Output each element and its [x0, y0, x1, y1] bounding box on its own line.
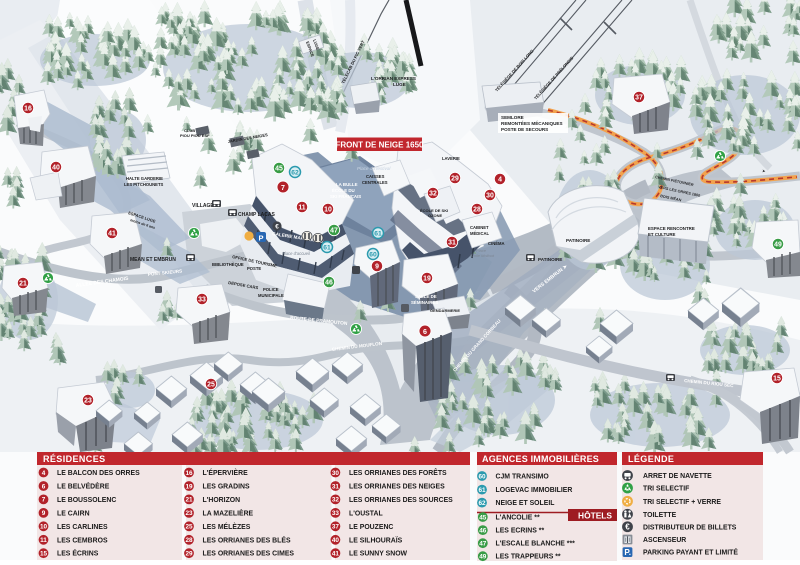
svg-text:PATINOIRE: PATINOIRE [538, 257, 562, 262]
svg-text:L'OUSTAL: L'OUSTAL [349, 510, 383, 517]
svg-text:46: 46 [325, 280, 333, 287]
svg-text:LES ECRINS **: LES ECRINS ** [496, 528, 545, 535]
svg-text:LES ORRIANES DES CIMES: LES ORRIANES DES CIMES [203, 551, 295, 558]
svg-text:16: 16 [24, 106, 32, 113]
svg-text:46: 46 [479, 527, 487, 534]
svg-text:45: 45 [479, 514, 487, 521]
svg-text:7: 7 [42, 497, 46, 504]
svg-text:4: 4 [498, 177, 502, 184]
svg-text:P: P [258, 233, 263, 242]
svg-text:ESPACE RENCONTRE: ESPACE RENCONTRE [648, 226, 695, 231]
svg-text:SEMLORE: SEMLORE [501, 115, 524, 120]
svg-text:LES ORRIANES DES SOURCES: LES ORRIANES DES SOURCES [349, 497, 453, 504]
svg-text:30: 30 [332, 470, 340, 477]
svg-text:MUNICIPALE: MUNICIPALE [258, 293, 284, 298]
svg-text:19: 19 [423, 276, 431, 283]
svg-text:15: 15 [773, 376, 781, 383]
svg-text:33: 33 [198, 297, 206, 304]
svg-text:POSTE DE SECOURS: POSTE DE SECOURS [501, 127, 548, 132]
svg-text:ARRET DE NAVETTE: ARRET DE NAVETTE [643, 473, 712, 480]
svg-text:62: 62 [291, 170, 299, 177]
svg-text:LA MAZELIÈRE: LA MAZELIÈRE [203, 508, 254, 517]
svg-text:L'ESCALE BLANCHE ***: L'ESCALE BLANCHE *** [496, 541, 576, 548]
svg-text:RÉSIDENCES: RÉSIDENCES [43, 454, 106, 464]
svg-text:28: 28 [185, 537, 193, 544]
svg-text:LES GRADINS: LES GRADINS [203, 484, 250, 491]
svg-text:ASCENSEUR: ASCENSEUR [643, 537, 686, 544]
svg-text:LES MÉLÈZES: LES MÉLÈZES [203, 522, 251, 531]
svg-text:21: 21 [19, 281, 27, 288]
svg-text:ET CULTURE: ET CULTURE [648, 232, 676, 237]
svg-text:37: 37 [635, 95, 643, 102]
svg-text:CAISSES: CAISSES [366, 174, 385, 179]
svg-text:LES PITCHOUNETS: LES PITCHOUNETS [124, 182, 164, 187]
svg-text:LE SUNNY SNOW: LE SUNNY SNOW [349, 551, 408, 558]
svg-text:CHAMP LACAS: CHAMP LACAS [238, 212, 276, 218]
svg-text:DISTRIBUTEUR DE BILLETS: DISTRIBUTEUR DE BILLETS [643, 524, 737, 531]
svg-text:45: 45 [275, 166, 283, 173]
svg-text:GENDARMERIE: GENDARMERIE [430, 308, 460, 313]
svg-text:11: 11 [298, 205, 305, 212]
svg-text:TRI SELECTIF + VERRE: TRI SELECTIF + VERRE [643, 499, 721, 506]
svg-text:LE SILHOURAÏS: LE SILHOURAÏS [349, 536, 403, 544]
svg-text:60: 60 [478, 473, 486, 480]
svg-text:TOILETTE: TOILETTE [643, 512, 677, 519]
svg-text:L'ANCOLIE **: L'ANCOLIE ** [496, 515, 540, 522]
svg-text:LES ORRIANES DES BLÉS: LES ORRIANES DES BLÉS [203, 535, 291, 544]
svg-text:16: 16 [185, 470, 193, 477]
svg-text:OZONE: OZONE [428, 213, 443, 218]
svg-text:25: 25 [185, 524, 193, 531]
svg-text:LÉGENDE: LÉGENDE [628, 454, 674, 464]
svg-text:HALTE GARDERIE: HALTE GARDERIE [126, 176, 163, 181]
svg-text:23: 23 [84, 398, 92, 405]
svg-text:Place du festival: Place du festival [357, 166, 391, 171]
svg-text:TRI SELECTIF: TRI SELECTIF [643, 486, 689, 493]
svg-text:31: 31 [448, 240, 456, 247]
svg-text:CABINET: CABINET [470, 225, 489, 230]
svg-text:SÉMINAIRES: SÉMINAIRES [411, 300, 438, 305]
svg-text:49: 49 [479, 554, 487, 561]
svg-text:L'ÉPERVIÈRE: L'ÉPERVIÈRE [203, 468, 249, 477]
svg-text:LES ORRIANES DES NEIGES: LES ORRIANES DES NEIGES [349, 484, 445, 491]
svg-text:LUGE: LUGE [393, 82, 406, 87]
svg-text:49: 49 [774, 242, 782, 249]
svg-text:REMONTÉES MÉCANIQUES: REMONTÉES MÉCANIQUES [501, 119, 563, 126]
svg-text:POSTE: POSTE [247, 266, 261, 271]
svg-text:CENTRALES: CENTRALES [362, 180, 388, 185]
svg-text:LE BELVÉDÈRE: LE BELVÉDÈRE [57, 482, 110, 491]
svg-text:41: 41 [332, 551, 340, 558]
svg-text:L'HORIZON: L'HORIZON [203, 497, 241, 504]
svg-text:10: 10 [40, 524, 48, 531]
svg-text:LE CAIRN: LE CAIRN [57, 510, 90, 517]
svg-text:31: 31 [332, 483, 340, 490]
svg-text:32: 32 [332, 497, 340, 504]
svg-text:ÉCOLE DU: ÉCOLE DU [332, 188, 355, 193]
svg-text:LE POUZENC: LE POUZENC [349, 524, 393, 531]
svg-text:CINÉMA: CINÉMA [488, 241, 505, 246]
svg-text:7: 7 [281, 184, 285, 192]
svg-text:P.: P. [624, 548, 631, 557]
svg-text:CJM TRANSIMO: CJM TRANSIMO [496, 474, 550, 481]
svg-text:LES CEMBROS: LES CEMBROS [57, 537, 108, 544]
svg-text:AGENCES IMMOBILIÈRES: AGENCES IMMOBILIÈRES [482, 454, 599, 464]
svg-text:41: 41 [108, 231, 116, 238]
svg-text:LOGEVAC IMMOBILIER: LOGEVAC IMMOBILIER [496, 487, 573, 494]
svg-text:47: 47 [479, 541, 487, 548]
svg-text:MEAN ET EMBRUN: MEAN ET EMBRUN [130, 257, 176, 263]
svg-text:PATINOIRE: PATINOIRE [566, 238, 590, 243]
svg-text:40: 40 [332, 537, 340, 544]
svg-text:FRONT DE NEIGE 1650: FRONT DE NEIGE 1650 [335, 141, 424, 150]
svg-text:40: 40 [52, 165, 60, 172]
svg-text:37: 37 [332, 524, 340, 531]
svg-text:MÉDICAL: MÉDICAL [470, 231, 490, 236]
svg-text:LES ORRIANES DES FORÊTS: LES ORRIANES DES FORÊTS [349, 468, 447, 477]
svg-text:11: 11 [40, 537, 47, 544]
svg-text:19: 19 [185, 483, 193, 490]
svg-text:29: 29 [451, 176, 459, 183]
svg-text:61: 61 [374, 231, 382, 238]
svg-text:10: 10 [324, 207, 332, 214]
svg-text:POLICE: POLICE [263, 287, 279, 292]
svg-text:LES ÉCRINS: LES ÉCRINS [57, 549, 99, 558]
svg-text:6: 6 [423, 328, 427, 336]
svg-text:€: € [275, 224, 279, 231]
svg-text:LES CARLINES: LES CARLINES [57, 524, 108, 531]
svg-text:Émile Mollout: Émile Mollout [470, 253, 495, 258]
svg-text:61: 61 [323, 245, 331, 252]
svg-text:LAVERIE: LAVERIE [442, 156, 460, 161]
svg-text:6: 6 [42, 483, 46, 490]
svg-text:23: 23 [185, 510, 193, 517]
svg-text:L'ORRIAN EXPRESS: L'ORRIAN EXPRESS [371, 76, 416, 81]
svg-text:33: 33 [332, 510, 340, 517]
svg-text:61: 61 [478, 487, 486, 494]
svg-text:NEIGE ET SOLEIL: NEIGE ET SOLEIL [496, 500, 555, 507]
svg-text:SALLE DE: SALLE DE [415, 294, 437, 299]
svg-text:Place d'accueil: Place d'accueil [282, 251, 311, 256]
svg-text:21: 21 [185, 497, 193, 504]
svg-text:9: 9 [42, 510, 46, 517]
svg-text:HÔTELS: HÔTELS [578, 510, 612, 521]
svg-text:60: 60 [369, 252, 377, 259]
svg-text:LA BULLE: LA BULLE [336, 182, 358, 187]
svg-text:28: 28 [473, 207, 481, 214]
svg-text:30: 30 [486, 193, 494, 200]
svg-text:15: 15 [40, 551, 48, 558]
svg-text:LES TRAPPEURS **: LES TRAPPEURS ** [496, 554, 561, 561]
svg-text:25: 25 [207, 382, 215, 389]
svg-text:SKI FRANÇAIS: SKI FRANÇAIS [330, 194, 361, 199]
svg-text:9: 9 [375, 264, 379, 271]
svg-text:PIOU PIOU ESF: PIOU PIOU ESF [180, 133, 210, 138]
svg-text:47: 47 [330, 228, 338, 235]
svg-text:LE BALCON DES ORRES: LE BALCON DES ORRES [57, 470, 140, 477]
svg-text:PARKING PAYANT ET LIMITÉ: PARKING PAYANT ET LIMITÉ [643, 548, 738, 557]
svg-text:29: 29 [185, 551, 193, 558]
svg-text:LE BOUSSOLENC: LE BOUSSOLENC [57, 497, 116, 504]
svg-text:32: 32 [429, 191, 437, 198]
svg-text:€: € [625, 523, 630, 532]
svg-text:4: 4 [42, 470, 46, 477]
svg-text:62: 62 [478, 500, 486, 507]
svg-text:BIBLIOTHÈQUE: BIBLIOTHÈQUE [212, 262, 244, 267]
